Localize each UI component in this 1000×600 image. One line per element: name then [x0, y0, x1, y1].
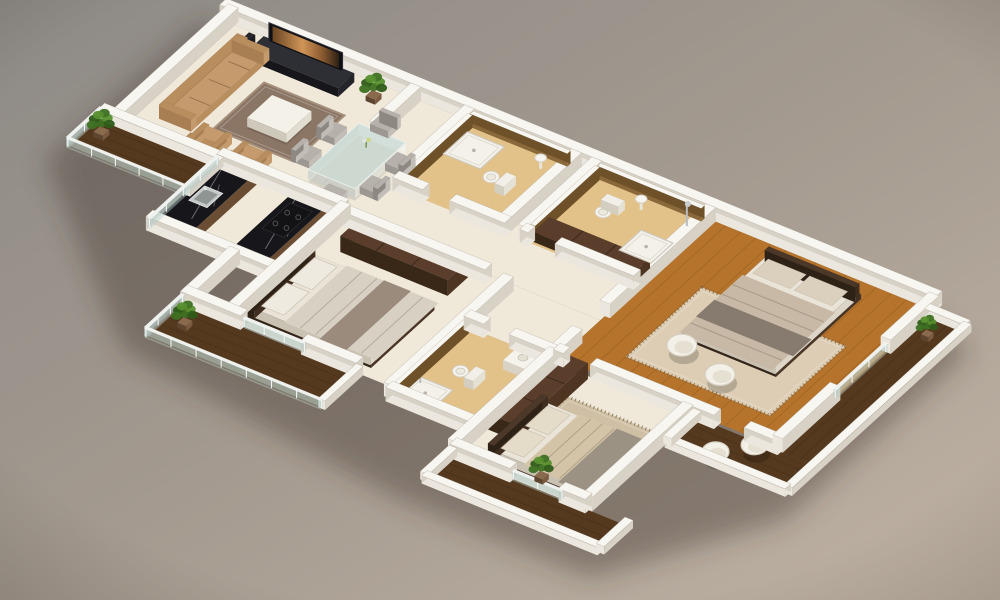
- floorplan-3d-render: [0, 0, 1000, 600]
- vignette: [0, 0, 1000, 600]
- isometric-apartment-scene: [0, 0, 1000, 600]
